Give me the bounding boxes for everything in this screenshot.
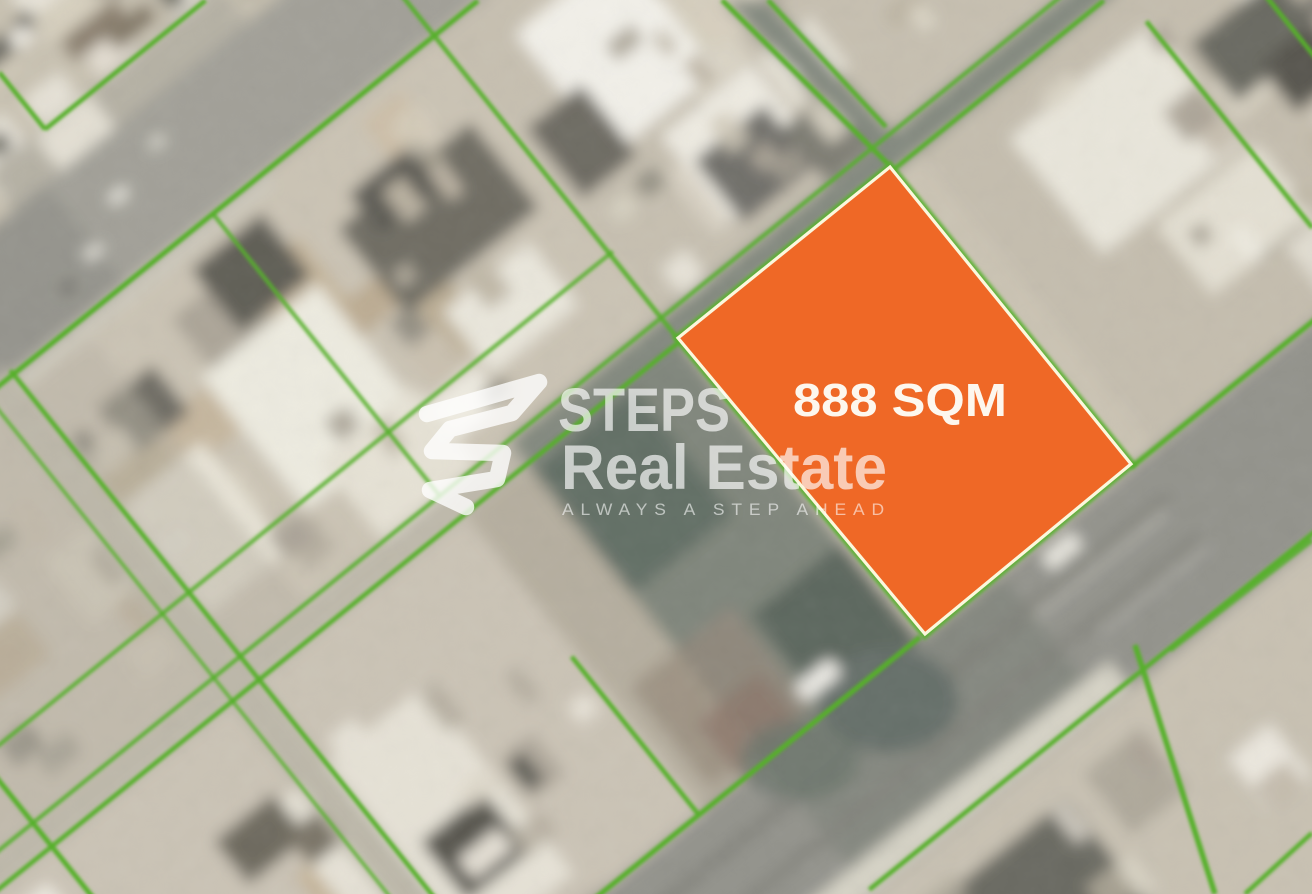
svg-text:Real Estate: Real Estate — [561, 433, 887, 503]
svg-text:888 SQM: 888 SQM — [793, 374, 1007, 426]
svg-text:ALWAYS A STEP AHEAD: ALWAYS A STEP AHEAD — [562, 501, 891, 519]
